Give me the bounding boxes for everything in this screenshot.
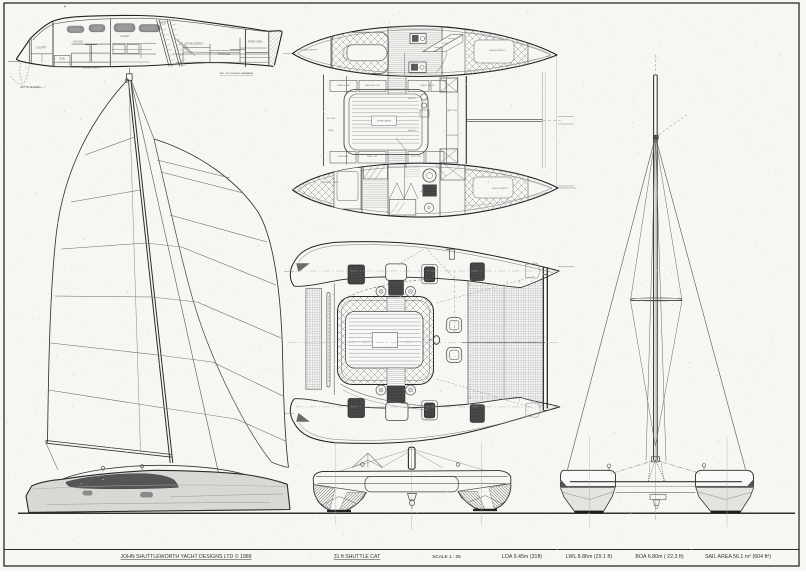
svg-text:DOUBLE BERTH: DOUBLE BERTH bbox=[185, 43, 204, 46]
svg-text:OWNERS CABIN: OWNERS CABIN bbox=[321, 181, 339, 184]
svg-text:GALLEY: GALLEY bbox=[120, 35, 130, 38]
svg-text:LWL 8.86m (29.1 ft): LWL 8.86m (29.1 ft) bbox=[566, 554, 612, 560]
svg-text:GALLEY: GALLEY bbox=[408, 97, 417, 100]
svg-text:ENGINE RM: ENGINE RM bbox=[446, 135, 459, 137]
svg-text:REF : 31ft CRUISING CATAMARAN: REF : 31ft CRUISING CATAMARAN bbox=[220, 72, 254, 75]
svg-text:DOUBLE BERTH: DOUBLE BERTH bbox=[301, 50, 318, 52]
svg-text:WATER TANKS: WATER TANKS bbox=[83, 67, 100, 70]
svg-text:COCKPIT: COCKPIT bbox=[36, 47, 47, 50]
svg-text:DRESSER: DRESSER bbox=[338, 156, 349, 158]
svg-text:BATT. RM: BATT. RM bbox=[447, 109, 457, 112]
svg-text:WET LKR: WET LKR bbox=[411, 156, 421, 158]
svg-text:FORE CABIN: FORE CABIN bbox=[248, 41, 263, 44]
svg-text:LOA 9.45m (31ft): LOA 9.45m (31ft) bbox=[502, 554, 543, 560]
svg-text:SINGLE BERTH: SINGLE BERTH bbox=[492, 188, 508, 190]
svg-text:STOWAGE: STOWAGE bbox=[218, 53, 230, 56]
svg-text:ARC OF RUDDER: ARC OF RUDDER bbox=[20, 86, 40, 89]
svg-text:SCALE 1 : 25: SCALE 1 : 25 bbox=[432, 554, 461, 559]
svg-text:SALOON: SALOON bbox=[73, 41, 83, 44]
svg-text:GALLEY: GALLEY bbox=[408, 129, 417, 132]
svg-text:JOHN SHUTTLEWORTH YACHT DESIGN: JOHN SHUTTLEWORTH YACHT DESIGNS LTD © 19… bbox=[120, 553, 251, 560]
svg-text:WARDROBE: WARDROBE bbox=[337, 84, 350, 87]
svg-text:WC: WC bbox=[420, 191, 424, 193]
svg-text:SAIL AREA 56.1 m² (604 ft²): SAIL AREA 56.1 m² (604 ft²) bbox=[705, 554, 771, 560]
svg-text:SETTEE: SETTEE bbox=[327, 118, 336, 120]
svg-text:SEAT: SEAT bbox=[328, 129, 334, 132]
svg-text:31 ft SHUTTLE CAT: 31 ft SHUTTLE CAT bbox=[334, 554, 381, 560]
svg-text:BOA 6.80m ( 22.3 ft): BOA 6.80m ( 22.3 ft) bbox=[635, 554, 684, 560]
svg-text:SEAT LKR: SEAT LKR bbox=[367, 155, 378, 158]
svg-text:HANGING LKR: HANGING LKR bbox=[365, 84, 380, 87]
svg-text:MAST: MAST bbox=[159, 21, 167, 25]
svg-text:CHART TABLE: CHART TABLE bbox=[420, 84, 435, 87]
svg-text:TANK: TANK bbox=[59, 58, 66, 61]
svg-text:SINGLE BERTH: SINGLE BERTH bbox=[489, 50, 505, 52]
svg-text:DINING AREA: DINING AREA bbox=[377, 119, 392, 122]
